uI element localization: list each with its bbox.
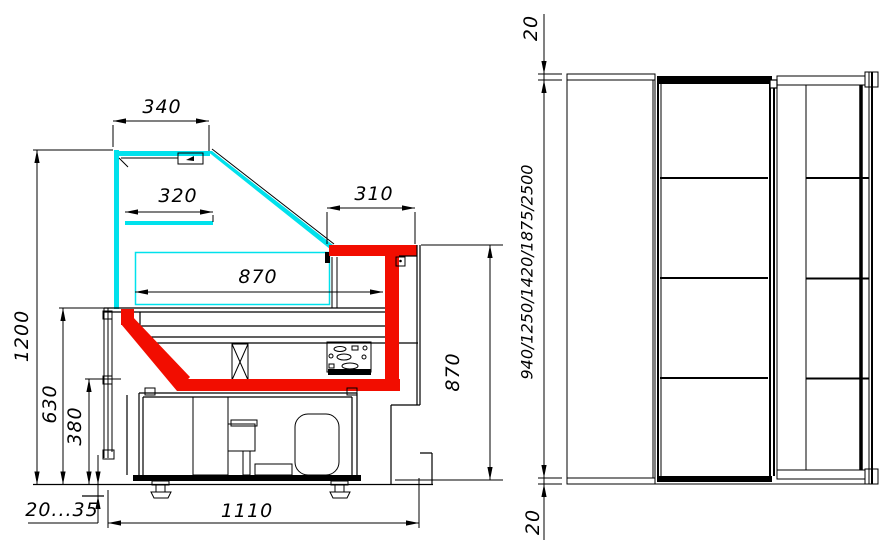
front-panel bbox=[103, 308, 114, 459]
dim-deck-height: 630 bbox=[39, 384, 61, 423]
glass-shelf bbox=[125, 221, 213, 225]
dim-deck-width: 870 bbox=[238, 266, 277, 288]
machine-compartment bbox=[127, 388, 361, 481]
dim-top-overhang: 20 bbox=[520, 15, 542, 41]
dim-base-depth: 1110 bbox=[221, 500, 273, 522]
front-view bbox=[538, 14, 878, 540]
electric-box bbox=[228, 424, 255, 451]
arrowheads bbox=[34, 118, 492, 525]
air-duct bbox=[193, 397, 228, 475]
middle-panel-section bbox=[657, 76, 777, 482]
rear-shelf bbox=[329, 245, 417, 256]
rear-column bbox=[385, 256, 399, 381]
dim-canopy-top: 340 bbox=[142, 96, 181, 118]
technical-drawing: 340 320 310 870 1200 630 380 20...35 111… bbox=[0, 0, 894, 559]
display-zone-outline bbox=[136, 253, 330, 305]
side-view bbox=[28, 118, 503, 528]
feet bbox=[33, 481, 433, 498]
glass-panels bbox=[114, 150, 333, 309]
front-dimension-lines bbox=[538, 14, 562, 540]
drip-tray bbox=[255, 464, 292, 475]
compressor bbox=[295, 414, 339, 475]
dim-inner-shelf: 320 bbox=[158, 185, 197, 207]
sloped-glass bbox=[207, 151, 333, 249]
dim-basin-height: 380 bbox=[64, 406, 86, 445]
dim-rear-height: 870 bbox=[442, 352, 464, 391]
dim-overall-height: 1200 bbox=[11, 310, 33, 362]
front-glass bbox=[114, 150, 119, 309]
dim-length-options: 940/1250/1420/1875/2500 bbox=[518, 165, 537, 380]
right-panel-section bbox=[777, 72, 878, 484]
left-panel-section bbox=[567, 74, 655, 484]
dim-bottom-overhang: 20 bbox=[522, 509, 544, 535]
basin-bottom bbox=[177, 379, 400, 391]
dim-rear-shelf: 310 bbox=[354, 183, 393, 205]
dim-foot-adjust: 20...35 bbox=[25, 499, 98, 521]
drawing-linework bbox=[0, 0, 894, 559]
